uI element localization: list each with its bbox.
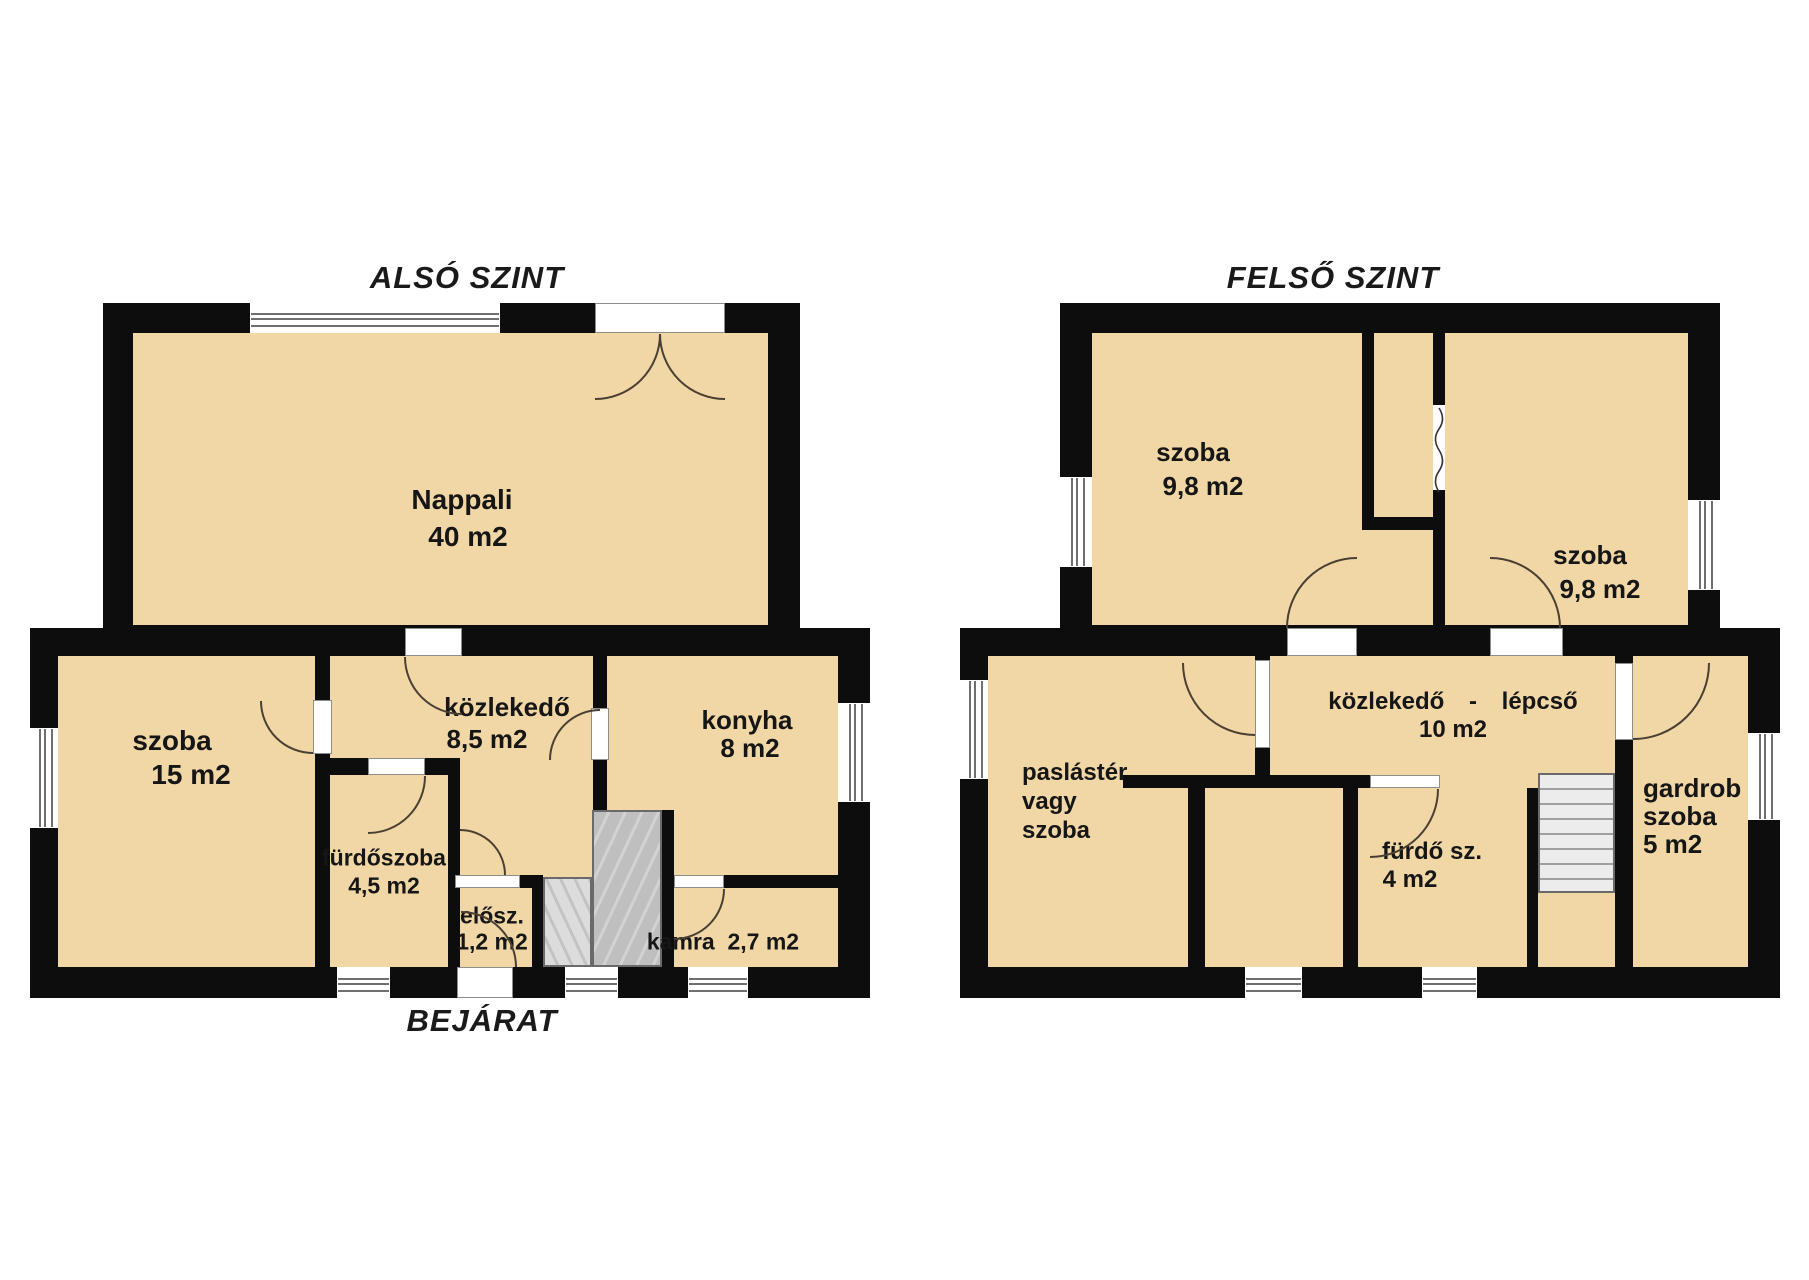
label-furdo-area: 4 m2 [1383, 868, 1438, 892]
label-szoba-left-area: 9,8 m2 [1163, 473, 1244, 499]
window-gardrob-right [1748, 733, 1780, 820]
label-elosz-area: 1,2 m2 [456, 931, 528, 954]
upper-level-title: FELSŐ SZINT [1227, 260, 1440, 296]
lower-level-title: ALSÓ SZINT [370, 260, 564, 296]
window-niche-shaft [1433, 405, 1445, 490]
wall-middleroom-left [1188, 788, 1205, 967]
door-furdo [1370, 775, 1440, 788]
door-paslaster [1255, 660, 1270, 748]
label-elosz-name: elősz. [460, 905, 524, 928]
label-szoba-right-name: szoba [1553, 542, 1627, 568]
door-szoba-right [1490, 628, 1563, 656]
label-szoba-name: szoba [132, 727, 211, 755]
label-paslaster-line2: vagy [1022, 790, 1077, 814]
french-door-nappali [595, 303, 725, 333]
window-szoba-left-wall [1060, 477, 1092, 567]
label-kozlekedo-lepcso-area: 10 m2 [1419, 718, 1487, 742]
wall-niche-left [1362, 333, 1374, 530]
window-konyha-right [838, 703, 870, 802]
label-kozlekedo-lepcso-name: közlekedő - lépcső [1328, 690, 1577, 714]
entrance-label: BEJÁRAT [406, 1003, 557, 1039]
label-konyha-name: konyha [701, 707, 792, 733]
window-stair-bottom [565, 967, 618, 998]
label-gardrob-line1: gardrob [1643, 775, 1741, 801]
window-szoba-left [30, 728, 58, 828]
label-gardrob-line2: szoba [1643, 803, 1717, 829]
label-furdoszoba-area: 4,5 m2 [348, 875, 420, 898]
door-elosz [455, 875, 520, 888]
floorplan-canvas: ALSÓ SZINT Nappali 40 m2 szoba 15 m2 köz… [0, 0, 1809, 1280]
window-paslaster-left [960, 680, 988, 779]
door-konyha [591, 708, 609, 760]
window-furdoszoba-bottom [337, 967, 390, 998]
label-kamra-area: 2,7 m2 [727, 929, 799, 955]
label-kozlekedo-name: közlekedő [444, 694, 570, 720]
wall-middle-top [1123, 775, 1370, 788]
window-furdo-bottom [1422, 967, 1477, 998]
door-entrance [457, 967, 513, 998]
window-middleroom-bottom [1245, 967, 1302, 998]
label-kamra: kamra 2,7 m2 [647, 931, 799, 954]
label-szoba-right-area: 9,8 m2 [1560, 576, 1641, 602]
wall-furdo-right [1527, 788, 1538, 967]
label-kamra-name: kamra [647, 929, 715, 955]
wall-middleroom-right [1343, 788, 1358, 967]
door-nappali-kozlekedo [405, 628, 462, 656]
staircase-lower-winder [543, 877, 592, 967]
wall-niche-right [1433, 333, 1445, 656]
door-furdoszoba [368, 758, 425, 775]
label-kozlekedo-area: 8,5 m2 [447, 726, 528, 752]
label-szoba-left-name: szoba [1156, 439, 1230, 465]
floor-nappali [133, 333, 768, 625]
staircase-upper [1538, 773, 1615, 893]
label-paslaster-line3: szoba [1022, 819, 1090, 843]
door-kamra [674, 875, 724, 888]
label-szoba-area: 15 m2 [151, 761, 230, 789]
label-paslaster-line1: paslástér [1022, 761, 1127, 785]
wall-elosz-right [532, 875, 543, 967]
label-nappali-area: 40 m2 [428, 523, 507, 551]
window-kamra-bottom [688, 967, 748, 998]
window-nappali-top [250, 303, 500, 333]
door-gardrob [1615, 663, 1633, 740]
window-szoba-right-wall [1688, 500, 1720, 590]
label-nappali-name: Nappali [411, 486, 512, 514]
label-konyha-area: 8 m2 [720, 735, 779, 761]
label-furdo-name: fürdő sz. [1382, 840, 1482, 864]
label-furdoszoba-name: fürdőszoba [322, 847, 446, 870]
door-szoba [313, 700, 332, 754]
label-gardrob-line3: 5 m2 [1643, 831, 1702, 857]
door-szoba-left [1287, 628, 1357, 656]
